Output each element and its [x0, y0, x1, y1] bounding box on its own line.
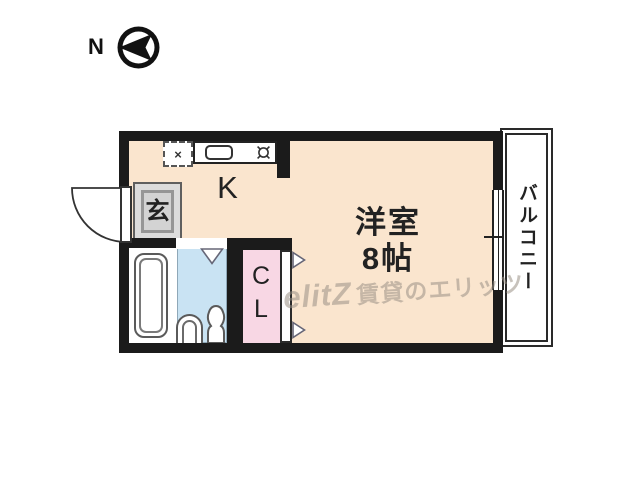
entrance-area: 玄 [133, 182, 182, 241]
bath-door-arrow-icon [200, 248, 224, 265]
refrigerator-mark: × [174, 147, 182, 162]
closet-label-line2: L [243, 293, 280, 326]
wall-right-upper [493, 131, 503, 190]
bathtub-inner-line [139, 258, 163, 333]
main-room-label-line1: 洋室 [327, 205, 449, 241]
entrance-label: 玄 [146, 198, 170, 226]
closet-label: C L [243, 260, 280, 325]
main-room-label: 洋室 8帖 [327, 205, 449, 276]
refrigerator-space-icon: × [163, 141, 193, 167]
window-center-tick [484, 236, 503, 238]
entrance-door-leaf [120, 186, 132, 243]
wall-left-lower [119, 242, 129, 353]
closet-door-arrow-icon [292, 251, 306, 269]
entrance-mat: 玄 [141, 190, 174, 233]
wall-toilet-closet [227, 250, 243, 343]
wall-bottom [119, 343, 503, 353]
wall-closet-top [227, 238, 292, 250]
wall-top [119, 131, 503, 141]
north-compass-icon [115, 24, 162, 71]
toilet-bowl-line [182, 320, 197, 343]
balcony: バルコニー [500, 128, 553, 347]
north-label: N [88, 34, 104, 60]
toilet-tank-icon [203, 303, 229, 343]
toilet-icon [176, 314, 203, 343]
closet-door-arrow-icon [292, 321, 306, 339]
balcony-inner-border: バルコニー [505, 133, 548, 342]
closet-label-line1: C [243, 260, 280, 293]
kitchen-sink-icon [205, 145, 233, 160]
bathtub-icon [134, 253, 168, 338]
watermark-logo: elitZ [282, 276, 353, 316]
stove-burner-icon [255, 144, 272, 161]
kitchen-label: K [205, 170, 250, 206]
wall-kitchen-stub [277, 141, 290, 178]
floor-plan: N バルコニー 玄 × [0, 0, 640, 480]
